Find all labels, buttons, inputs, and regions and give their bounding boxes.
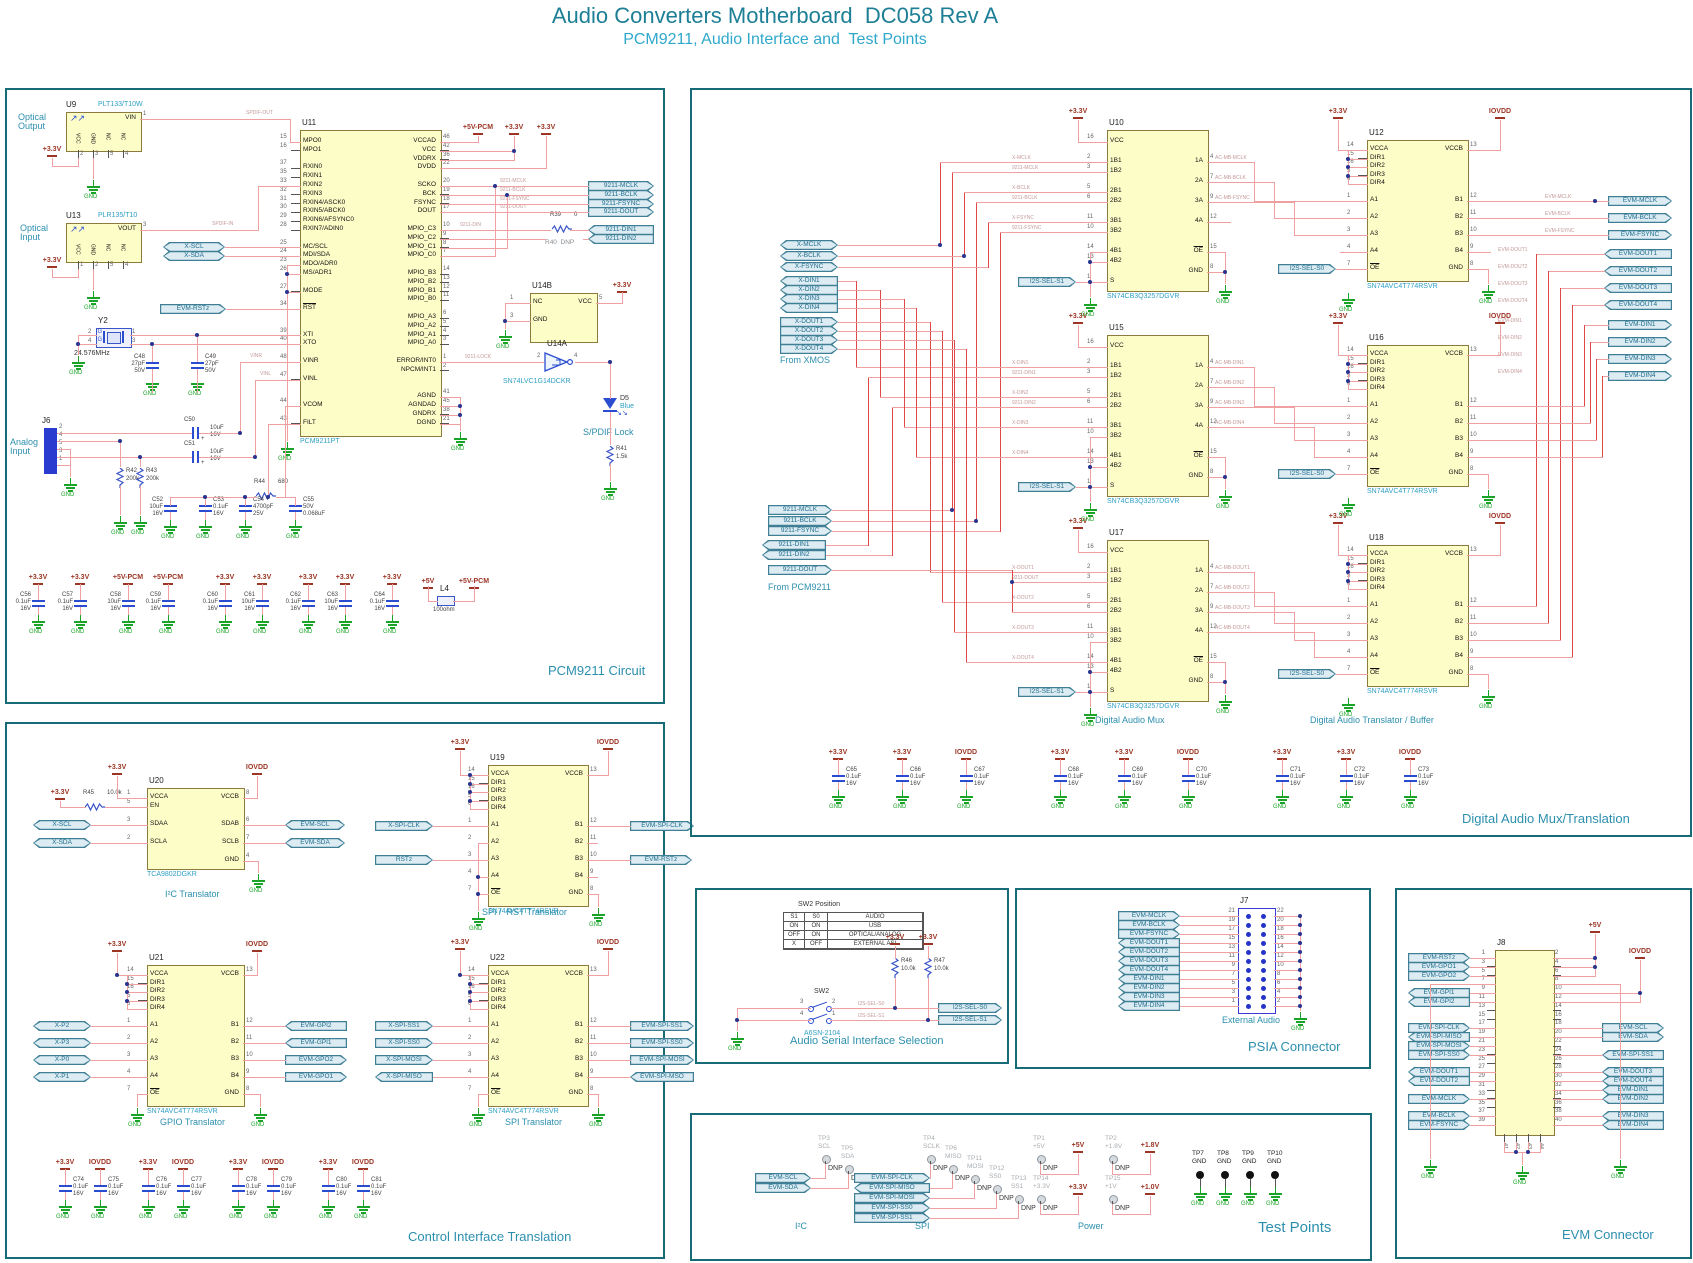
pin-number: 8 [1555,976,1558,982]
wire [942,331,943,603]
label: X-DOUT4 [1012,656,1034,661]
junction-dot [1638,991,1642,995]
junction-dot [1593,199,1597,203]
pin-number: 28 [280,222,287,228]
power-label: +3.3V [43,146,62,153]
connector-pin [1261,995,1266,1000]
net-flag-label: EVM-DOUT3 [1118,957,1180,964]
label: From XMOS [780,356,830,365]
junction-dot [138,455,142,459]
pin-number: 10 [1087,429,1094,435]
net-flag-evm-spi-mso: EVM-SPI-MSO [630,1072,694,1082]
power-bar [1495,522,1505,524]
pin-number: 35 [280,169,287,175]
pin-name: GND [1145,268,1203,275]
pin-name: NC [119,133,124,140]
power-label: +1.0V [1141,1184,1160,1191]
pin-name: VCCA [1370,551,1388,558]
wire [1078,325,1079,348]
wire [1536,254,1537,607]
pin-number: 3 [143,222,146,228]
power-bar [1073,117,1083,119]
pin-name: MPIO_A0 [378,340,436,347]
switch-refdes: SW2 [814,988,829,995]
pin-number: 13 [1470,547,1477,553]
wire [197,335,198,355]
cap-lead [38,584,39,592]
wire [152,377,153,393]
label: AC-MB-DOUT3 [1215,606,1250,611]
wire [976,202,977,522]
gnd-label: GND [589,922,602,928]
pin-name: 4A [1145,218,1203,225]
net-flag-evm-dout3: EVM-DOUT3 [1604,283,1672,293]
junction-dot [1346,362,1350,366]
res-value: 10.0k [901,966,916,973]
wire [1602,376,1603,458]
wire [952,1174,953,1189]
net-flag-evm-mclk: EVM-MCLK [1118,911,1180,921]
pin-name: B2 [181,1039,239,1046]
gnd-label: GND [1339,307,1352,313]
cap-lead [902,782,903,790]
gnd-label: GND [111,530,124,536]
wire [1553,1081,1603,1082]
label: X-FSYNC [1012,216,1034,221]
wire [57,441,121,442]
net-flag-evm-sda: EVM-SDA [755,1183,811,1193]
wire [117,776,118,799]
power-bar [455,748,465,750]
junction-dot [1088,280,1092,284]
pin-stub [291,203,300,204]
gnd-bar [386,621,399,623]
power-label: +3.3V [319,1159,338,1166]
net-flag-i2s-sel-s0: I2S-SEL-S0 [1278,669,1336,679]
pin-number: 10 [590,852,597,858]
wire [1090,467,1108,468]
pin-number: 6 [1277,980,1280,986]
junction-dot [125,990,129,994]
pin-number: 10 [1277,962,1284,968]
wire [170,497,171,506]
net-flag-evm-din1: EVM-DIN1 [1608,320,1672,330]
cap-lead [966,782,967,790]
pin-name: S [1110,278,1114,285]
pin-name: OE [1145,453,1203,460]
net-flag-label: EVM-BCLK [1608,214,1672,221]
pin-number: 11 [1470,415,1476,421]
net-flag-label: X-SPI-MISO [375,1073,433,1080]
junction-dot [125,999,129,1003]
pin-name: 4B2 [1110,463,1122,470]
gnd-label: GND [131,530,144,536]
pin-name: GND [1145,678,1203,685]
ic-part-number: SN74CB3Q3257DGVR [1107,703,1179,710]
gnd-label: GND [174,1214,187,1220]
gnd-label: GND [1081,312,1094,318]
pin-name: DIR3 [491,797,506,804]
wire [1488,474,1489,489]
pin-name: RXIN4/ASCK0 [303,200,345,207]
pin-name: DIR1 [491,980,506,987]
pin-number: 3 [127,1052,130,1058]
gnd-label: GND [61,492,74,498]
crystal-plate [122,331,124,343]
wire [587,843,598,844]
net-flag-label: EVM-DIN1 [1118,975,1180,982]
wire [904,299,905,428]
gnd-bar [74,365,83,367]
pin-number: 4 [127,1069,130,1075]
pin-number: 2 [537,353,540,359]
ic-refdes: U17 [1109,529,1124,537]
wire [474,586,475,602]
gnd-label: GND [957,804,970,810]
net-flag-label: EVM-DOUT2 [1604,267,1672,274]
net-flag-label: EVM-MCLK [1408,1095,1470,1102]
net-flag-evm-sda: EVM-SDA [1602,1032,1664,1042]
table-cell: S1 [784,913,805,922]
pin-name: 3A [1145,608,1203,615]
power-label: +3.3V [537,124,556,131]
pin-name: A2 [1370,619,1378,626]
wire [440,151,515,152]
gnd-bar [291,529,300,531]
pin-number: 4 [1210,359,1213,365]
schematic-canvas: Audio Converters Motherboard DC058 Rev A… [0,0,1693,1263]
power-label: +3.3V [1115,749,1134,756]
gnd-bar [1614,1166,1627,1168]
power-label: +3.3V [1069,1184,1088,1191]
wire [838,290,881,291]
net-flag-label: 9211-DIN2 [588,235,654,242]
gnd-label: GND [829,804,842,810]
wire [1338,525,1339,556]
pin-name: VCC [534,299,592,306]
net-flag-label: EVM-SPI-CLK [854,1174,930,1181]
pin-name: B2 [1405,419,1463,426]
gnd-bar [357,1206,370,1208]
wire [966,349,967,663]
net-flag-x-bclk: X-BCLK [780,251,838,261]
wire [1336,474,1368,475]
pin-number: 10 [443,222,450,228]
pin-name: A4 [491,873,499,880]
cap-lead [345,592,346,600]
wire [1274,218,1368,219]
cap-lead [168,592,169,600]
capacitor-c64 [386,600,399,602]
pin-number: 28 [1555,1064,1562,1070]
gnd-bar [254,883,263,885]
net-flag-label: EVM-DOUT1 [1604,250,1672,257]
pin-name: VCC [74,133,79,144]
gnd-label: GND [251,1122,264,1128]
net-flag-evm-fsync: EVM-FSYNC [1408,1120,1470,1130]
pin-name: 2B2 [1110,403,1122,410]
wire [1553,976,1596,977]
pin-name: VCC [378,147,436,154]
test-point-tp5 [845,1165,854,1174]
table-cell: X [784,940,805,949]
label: AC-MB-MCLK [1215,156,1247,161]
wire [91,1060,148,1061]
power-label: IOVDD [262,1159,284,1166]
capacitor-c49 [191,362,204,364]
wire [1274,925,1301,926]
pin-number: 21 [1222,908,1235,914]
wire [243,798,258,799]
pin-name: MPIO_C2 [378,235,436,242]
wire [1294,202,1295,236]
wire [470,792,489,793]
wire [295,497,296,506]
wire [470,1009,489,1010]
connector-pin [1246,995,1251,1000]
wire [1602,376,1609,377]
pin-name: VCCB [525,971,583,978]
gnd-bar [1118,796,1131,798]
wire [117,798,148,799]
net-flag-evm-bclk: EVM-BCLK [1118,920,1180,930]
pin-number: 11 [1222,953,1235,959]
net-flag-evm-dout1: EVM-DOUT1 [1604,249,1672,259]
junction-dot [505,193,509,197]
pin-number: 1 [468,1018,471,1024]
label: Test Points [1258,1220,1331,1236]
gnd-bar [1484,499,1493,501]
gnd-bar [87,297,100,299]
connector-refdes: J8 [1497,939,1505,947]
wire [440,195,589,196]
gnd-label: GND [196,534,209,540]
net-flag-label: EVM-RSTz [630,856,692,863]
wire [243,1026,286,1027]
test-point-signal: SDA [841,1154,854,1161]
pin-name: B1 [1405,402,1463,409]
power-bar [1073,1151,1083,1153]
pin-name: RXIN5/ABCK0 [303,208,345,215]
gnd-bar [131,1114,144,1116]
cap-lead [1188,759,1189,767]
gnd-bar [239,526,252,528]
net-flag-evm-din1: EVM-DIN1 [1602,1085,1664,1095]
gnd-bar [474,921,483,923]
pin-name: DIR2 [1370,568,1385,575]
gnd-bar [1344,302,1353,304]
wire [904,427,1108,428]
pin-number: 7 [1347,261,1350,267]
wire [1467,440,1597,441]
power-label: IOVDD [352,1159,374,1166]
net-flag-label: EVM-SPI-MSO [630,1073,694,1080]
pin-name: 4B1 [1110,248,1122,255]
cap-label: C80 0.1uF 16V [336,1177,351,1198]
wire [258,861,259,873]
pin-stub [1516,1134,1517,1142]
pin-name: VCCA [150,971,168,978]
gnd-bar [201,529,210,531]
wire [52,158,53,167]
wire [1467,252,1491,253]
pin-number: 9 [1210,399,1213,405]
test-point-signal: SCLK [923,1144,940,1151]
gnd-bar [219,621,232,623]
net-flag-label: X-P1 [33,1073,91,1080]
pin-name: A1 [491,1022,499,1029]
wire [1348,572,1368,573]
pin-name: B3 [1405,636,1463,643]
wire [570,230,589,231]
gnd-bar [64,484,77,486]
pin-name: SDAA [150,821,168,828]
pin-number: 3 [1087,369,1090,375]
wire [575,362,611,363]
gnd-bar [1276,796,1289,798]
label: Digital Audio Mux/Translation [1462,812,1630,826]
gnd-bar [66,487,75,489]
wire [91,825,148,826]
pin-name: A4 [1370,653,1378,660]
wire [1467,218,1609,219]
net-flag-x-mclk: X-MCLK [780,240,838,250]
cap-lead [183,1192,184,1200]
gnd-label: GND [1081,722,1094,728]
gnd-bar [72,362,85,364]
wire [838,331,943,332]
label: External Audio [1222,1016,1280,1025]
wire [1078,142,1108,143]
wire [1274,1006,1301,1007]
gnd-label: GND [1479,299,1492,305]
pin-name: 3B2 [1110,433,1122,440]
power-label: IOVDD [89,1159,111,1166]
wire [1338,325,1339,356]
wire [1180,988,1239,989]
cap-lead [183,1169,184,1177]
junction-dot [238,431,242,435]
net-flag-label: X-SPI-SS0 [375,1039,433,1046]
pin-name: B2 [525,1039,583,1046]
gnd-bar [359,1209,368,1211]
power-label: +3.3V [336,574,355,581]
pin-name: VCCB [181,794,239,801]
wire [1467,640,1561,641]
test-point-tp6 [949,1165,958,1174]
power-label: IOVDD [246,941,268,948]
pin-number: 41 [443,389,450,395]
ic-part-number: PLR135/T10 [98,212,137,219]
power-label: IOVDD [1177,749,1199,756]
cap-label: C52 10uF 16V [130,497,163,518]
dnp-label: DNP [977,1185,992,1192]
wire [928,946,929,959]
net-flag-evm-spi-clk: EVM-SPI-CLK [1408,1023,1470,1033]
pin-number: 10 [246,1052,253,1058]
cap-lead [1124,759,1125,767]
net-flag-evm-din3: EVM-DIN3 [1602,1111,1664,1121]
pin-number: 14 [1555,1003,1562,1009]
wire [255,380,301,381]
gnd-label: GND [728,1046,741,1052]
pin-name: DIR4 [491,1005,506,1012]
net-flag-label: 9211-DIN1 [588,226,654,233]
power-label: IOVDD [246,764,268,771]
wire [610,412,611,445]
net-flag-evm-dout3: EVM-DOUT3 [1118,956,1180,966]
wire [976,202,1108,203]
cap-lead [328,1192,329,1200]
gnd-bar [304,624,313,626]
capacitor-c59 [162,600,175,602]
wire [1078,120,1079,143]
wire [1314,457,1368,458]
wire [838,322,931,323]
capacitor-c63 [339,600,352,602]
pin-name: 3B1 [1110,218,1122,225]
pin-name: DIR1 [1370,560,1385,567]
gnd-bar [1482,291,1495,293]
pin-name: OE [1370,670,1379,677]
wire [440,256,496,257]
junction-dot [1593,956,1597,960]
junction-dot [1526,1150,1530,1154]
label: SPI / RST Translator [482,908,567,917]
test-point-signal: +5V [1033,1144,1045,1151]
pin-number: 16 [1555,1012,1562,1018]
cap-lead [262,592,263,600]
wire [1500,525,1501,556]
wire [287,292,301,293]
gnd-bar [1482,496,1495,498]
wire [470,1001,489,1002]
gnd-bar [1084,714,1097,716]
pin-name: MS/ADR1 [303,270,332,277]
junction-dot [1298,923,1302,927]
wire [200,433,241,434]
wire [1470,967,1496,968]
capacitor-c71 [1276,775,1289,777]
wire [608,951,609,976]
pin-number: 3 [800,999,803,1005]
gnd-label: GND [264,1214,277,1220]
label: EVM-FSYNC [1545,229,1574,234]
connector-pin [1246,986,1251,991]
wire [825,1164,826,1179]
pin-name: A1 [491,822,499,829]
gnd-bar [59,1206,72,1208]
label: From PCM9211 [768,583,831,592]
gnd-label: GND [188,391,201,397]
pin-number: 11 [590,1035,596,1041]
pin-name: 4B2 [1110,668,1122,675]
pin-name: G [98,337,103,343]
capacitor-c50 [192,427,194,439]
wire [91,1043,148,1044]
wire [1274,970,1301,971]
pin-number: 4 [246,853,249,859]
cap-lead [392,592,393,600]
test-point-name: TP12 [989,1166,1005,1173]
cap-lead [65,1177,66,1185]
wire [1274,423,1368,424]
net-flag-x-fsync: X-FSYNC [780,262,838,272]
wire [1338,355,1368,356]
pin-name: NPCM/INT1 [378,367,436,374]
wire [440,204,589,205]
pin-number: 15 [127,976,134,982]
